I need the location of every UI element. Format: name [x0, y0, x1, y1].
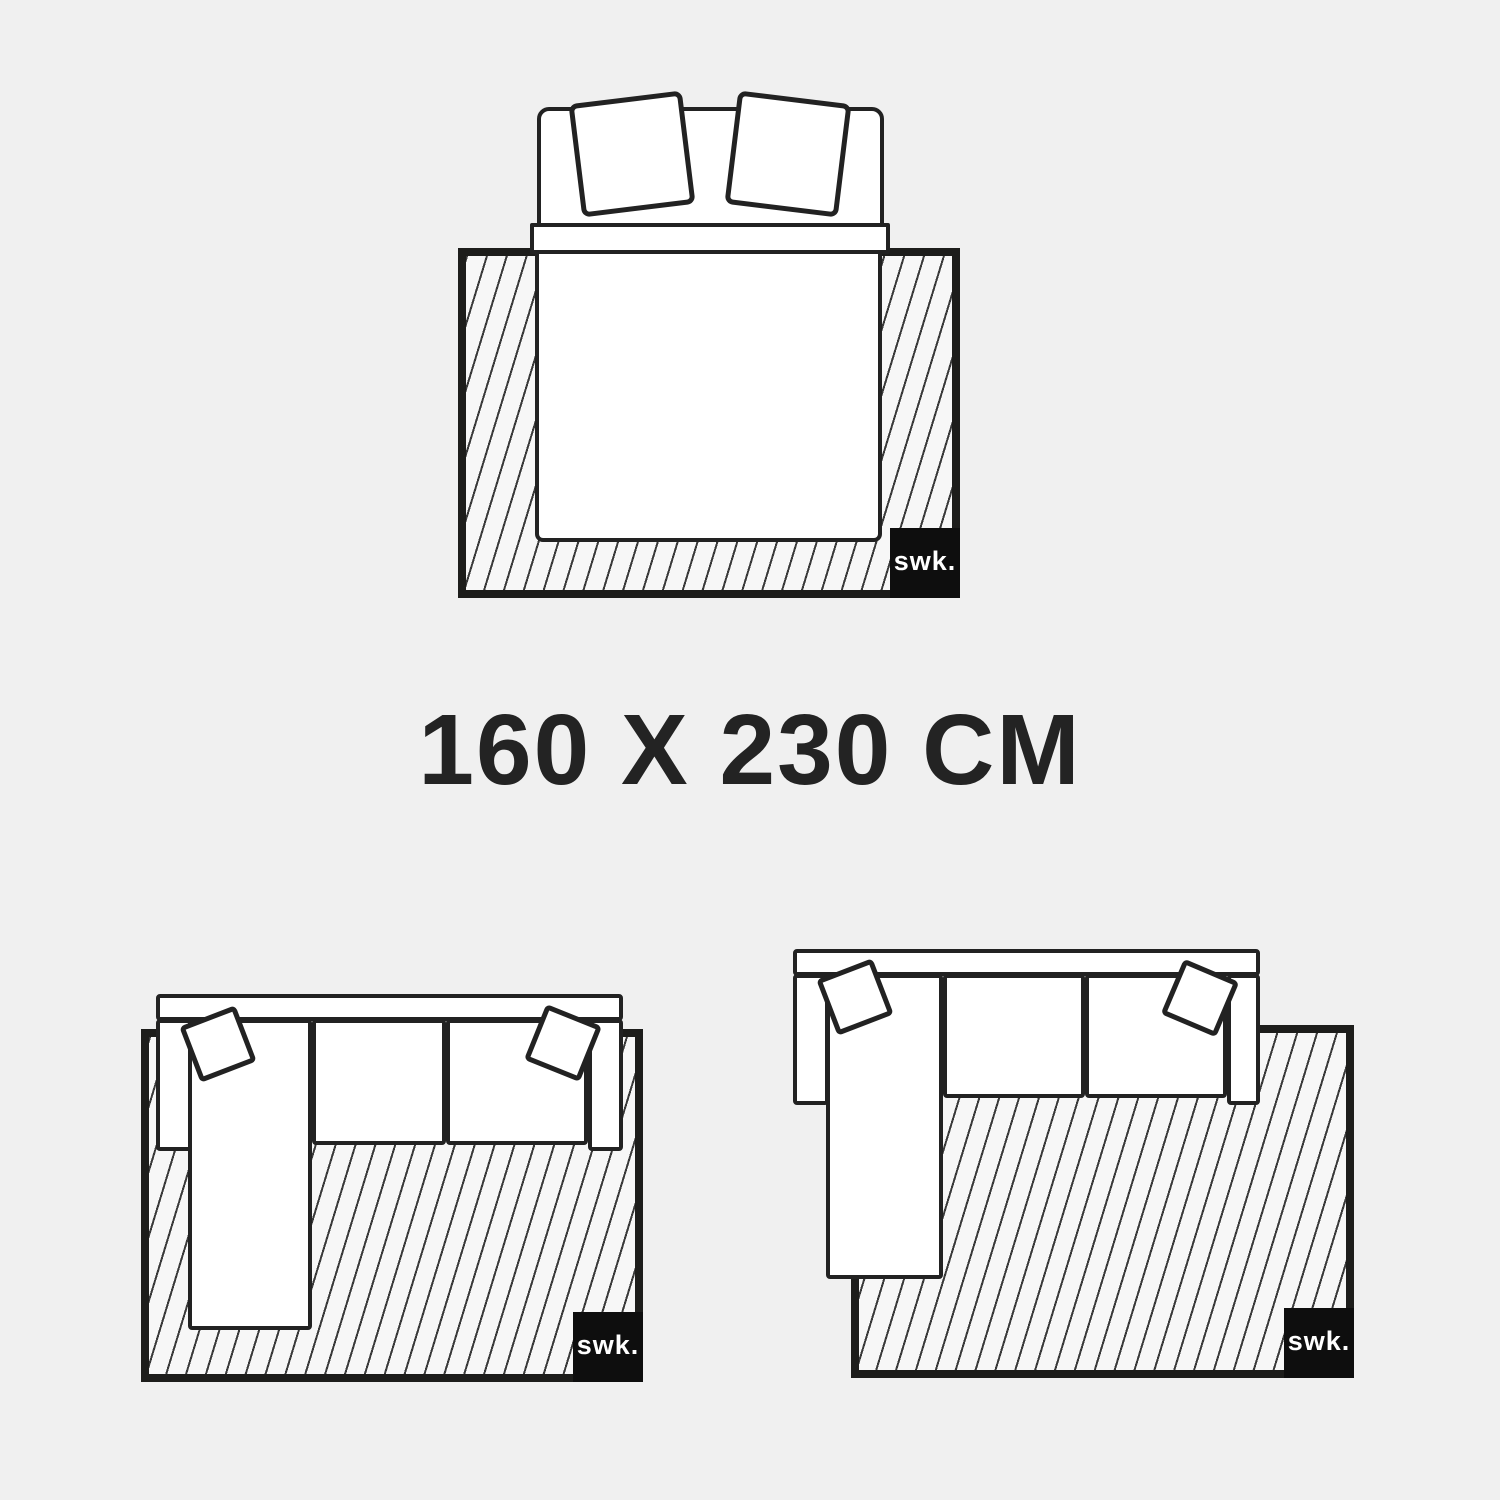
sofa-cushion-1 — [312, 1019, 446, 1145]
bed-pillow-left — [568, 90, 695, 217]
size-label: 160 X 230 CM — [0, 690, 1500, 810]
brand-logo-text: swk. — [577, 1330, 640, 1361]
bed-duvet-fold-band — [530, 223, 890, 254]
sofa-cushion-1 — [943, 974, 1085, 1098]
brand-logo: swk. — [890, 528, 960, 598]
brand-logo-text: swk. — [894, 546, 957, 577]
rug-size-guide-image: swk. 160 X 230 CM swk. swk. — [0, 0, 1500, 1500]
brand-logo-text: swk. — [1288, 1326, 1351, 1357]
brand-logo: swk. — [1284, 1308, 1354, 1378]
brand-logo: swk. — [573, 1312, 643, 1382]
bed-duvet — [535, 249, 882, 542]
bed-pillow-right — [724, 90, 851, 217]
